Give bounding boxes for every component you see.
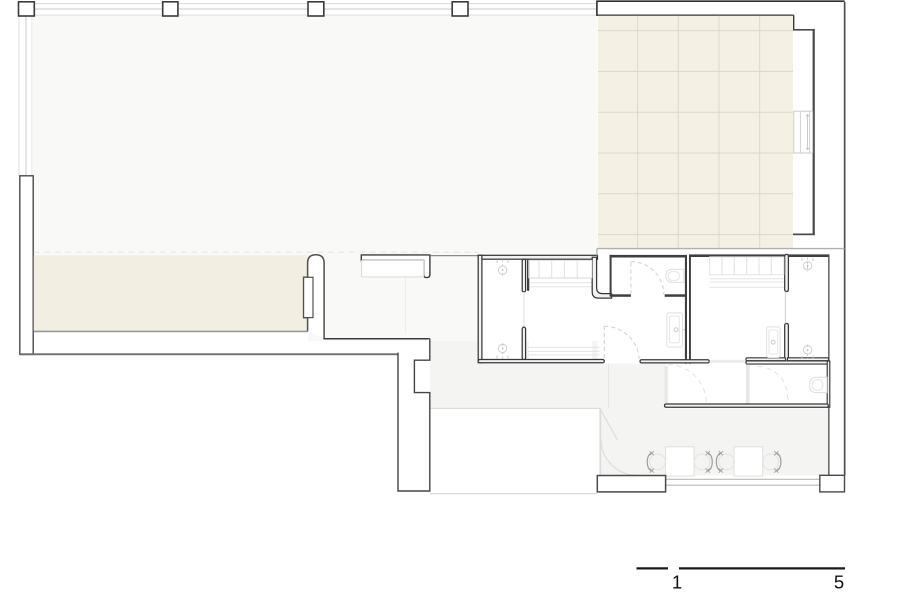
svg-text:5: 5 <box>834 572 844 593</box>
svg-text:1: 1 <box>672 572 682 593</box>
